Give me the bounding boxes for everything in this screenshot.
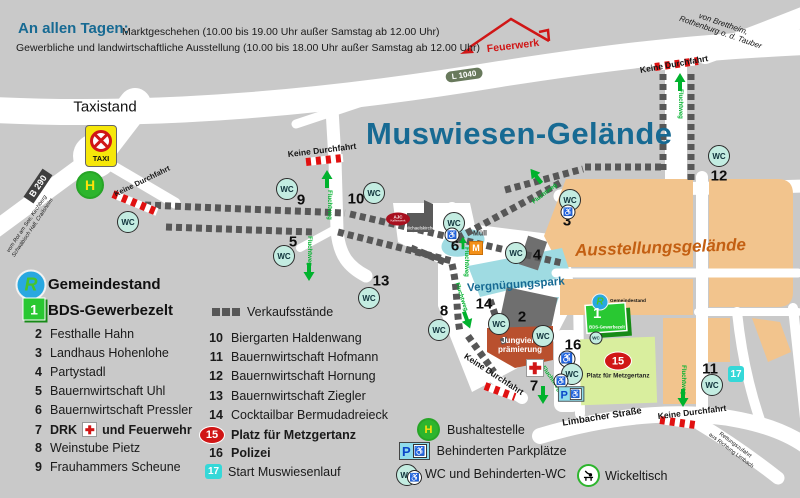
wc-accessible-icon: WC ♿ <box>396 464 420 484</box>
legend-item-14: 14Cocktailbar Bermudadreieck <box>203 408 388 422</box>
legend-wc-behinderten: WC ♿ WC und Behinderten-WC <box>396 464 566 484</box>
legend-item-11: 11Bauernwirtschaft Hofmann <box>203 350 378 364</box>
muell-label: Müll <box>473 231 487 238</box>
legend-bds-label: BDS-Gewerbezelt <box>48 302 173 319</box>
header-line2: Gewerbliche und landwirtschaftliche Auss… <box>16 42 480 54</box>
kaffee-stand: AJC Kaffeewerk <box>386 213 410 226</box>
map-marker-17: 17 <box>728 366 744 382</box>
map-title: Muswiesen-Gelände <box>366 116 673 152</box>
wheelchair-icon: ♿ <box>561 205 576 220</box>
legend-behinderten-parkplaetze: P♿ Behinderten Parkplätze <box>399 442 567 460</box>
legend-item-8: 8Weinstube Pietz <box>22 441 140 455</box>
metzgertanz-label: Platz für Metzgertanz <box>587 373 650 380</box>
header-intro: An allen Tagen: <box>18 20 129 37</box>
metzgertanz-badge: 15 <box>199 426 225 444</box>
map-number-10: 10 <box>348 191 365 208</box>
fluchtweg-label: Fluchtweg <box>306 236 312 266</box>
bds-map-number: 1 <box>593 305 601 322</box>
wc-icon: WC <box>505 242 527 264</box>
wc-icon: WC <box>708 145 730 167</box>
taxistand-label: Taxistand <box>73 99 136 116</box>
bds-map-label: BDS-Gewerbezelt <box>589 325 625 330</box>
wc-icon: WC <box>488 313 510 335</box>
gemeindestand-map-label: Gemeindestand <box>610 299 646 304</box>
wc-icon: WC <box>590 332 603 345</box>
legend-verkaufsstaende: Verkaufsstände <box>212 305 333 319</box>
muswiesenlauf-badge: 17 <box>205 464 222 479</box>
legend-item-16: 16Polizei <box>203 446 271 460</box>
drk-cross-icon <box>526 359 544 377</box>
map-number-4: 4 <box>533 247 541 264</box>
wc-icon: WC <box>701 374 723 396</box>
header-line1: Marktgeschehen (10.00 bis 19.00 Uhr auße… <box>122 26 440 38</box>
wc-icon: WC <box>363 182 385 204</box>
map-number-12: 12 <box>711 168 728 185</box>
wc-icon: WC <box>532 325 554 347</box>
map-number-14: 14 <box>476 296 493 313</box>
legend-item-13: 13Bauernwirtschaft Ziegler <box>203 389 366 403</box>
legend-item-2: 2Festhalle Hahn <box>22 327 134 341</box>
legend-item-3: 3Landhaus Hohenlohe <box>22 346 169 360</box>
wc-icon: WC <box>428 319 450 341</box>
legend-item-17: 17 Start Muswiesenlauf <box>205 464 341 479</box>
fluchtweg-label: Fluchtweg <box>326 190 332 220</box>
muswiese-map: An allen Tagen: Marktgeschehen (10.00 bi… <box>0 0 800 498</box>
wickeltisch-icon <box>577 464 600 487</box>
map-marker-15: 15 <box>604 352 632 371</box>
legend-item-7: 7 DRK und Feuerwehr <box>22 422 192 437</box>
taxi-sign: TAXI <box>85 125 117 167</box>
legend-bushaltestelle: H Bushaltestelle <box>417 418 525 441</box>
map-number-9: 9 <box>297 192 305 209</box>
legend-item-5: 5Bauernwirtschaft Uhl <box>22 384 165 398</box>
wc-icon: WC <box>117 211 139 233</box>
muell-station-icon: M <box>469 241 483 255</box>
stalls-icon <box>212 308 240 316</box>
wc-icon: WC <box>273 245 295 267</box>
bus-stop-icon: H <box>417 418 440 441</box>
legend-item-15: 15 Platz für Metzgertanz <box>199 426 356 444</box>
map-number-13: 13 <box>373 273 390 290</box>
wc-icon: WC <box>276 178 298 200</box>
bus-stop-icon: H <box>76 171 104 199</box>
map-number-7: 7 <box>530 378 538 395</box>
legend-item-10: 10Biergarten Haldenwang <box>203 331 362 345</box>
legend-item-9: 9Frauhammers Scheune <box>22 460 181 474</box>
wc-icon: WC <box>358 287 380 309</box>
drk-cross-icon <box>82 422 97 437</box>
legend-wickeltisch: Wickeltisch <box>577 464 668 487</box>
legend-bds-badge: 1 <box>23 298 46 321</box>
fluchtweg-label: Fluchtweg <box>677 89 683 119</box>
map-number-8: 8 <box>440 303 448 320</box>
metzgertanz-area <box>579 337 657 406</box>
legend-item-12: 12Bauernwirtschaft Hornung <box>203 369 376 383</box>
map-number-2: 2 <box>518 309 526 326</box>
legend-item-6: 6Bauernwirtschaft Pressler <box>22 403 192 417</box>
legend-gemeindestand-label: Gemeindestand <box>48 276 161 293</box>
wheelchair-icon: ♿ <box>445 228 460 243</box>
no-stopping-icon <box>90 130 112 152</box>
michaelskirche-label: Michaelskirche <box>405 226 435 231</box>
fluchtweg-label: Fluchtweg <box>680 365 686 395</box>
gemeindestand-logo-icon: R <box>16 270 47 301</box>
legend-item-4: 4Partystadl <box>22 365 106 379</box>
accessible-parking-icon: P♿ <box>558 386 584 401</box>
accessible-parking-icon: P♿ <box>399 442 430 460</box>
